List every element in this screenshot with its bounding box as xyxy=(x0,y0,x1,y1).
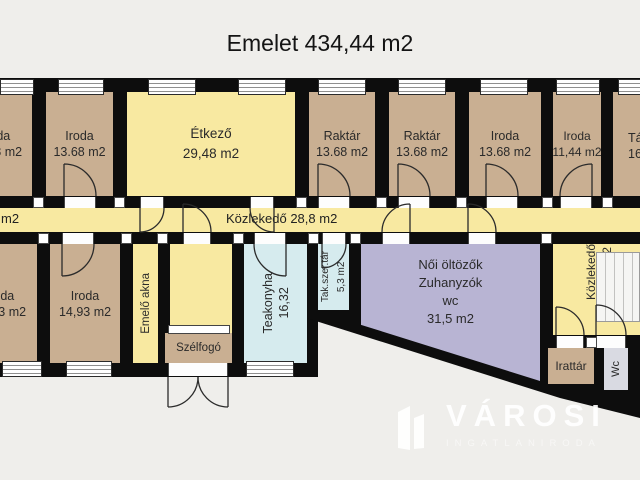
door-opening xyxy=(254,233,286,244)
window-icon xyxy=(318,79,366,95)
room-label: Tak.szer.tár5,3 m2 xyxy=(318,251,350,302)
room-iroda-5: Iroda14,93 m2 xyxy=(50,244,120,363)
wall-cap xyxy=(456,197,467,208)
door-opening xyxy=(250,197,274,208)
room-raktar-1: Raktár13.68 m2 xyxy=(309,92,375,196)
corridor-main: Közlekedő 28,8 m2 m2 xyxy=(0,208,640,232)
staircase xyxy=(596,252,640,322)
door-opening xyxy=(318,197,350,208)
room-label: Tá16 xyxy=(628,130,640,162)
room-iroda-cut-left-top: Iroda13.68 m2 xyxy=(0,92,32,196)
room-iroda-2: Iroda13.68 m2 xyxy=(46,92,113,196)
wall-cap xyxy=(308,233,319,244)
window-icon xyxy=(66,361,112,377)
sliding-door xyxy=(168,325,230,334)
room-noi-oltozok: Női öltözők Zuhanyzók wc 31,5 m2 xyxy=(361,244,540,381)
window-icon xyxy=(556,79,600,95)
window-icon xyxy=(148,79,196,95)
watermark-tagline: INGATLANIRODA xyxy=(446,438,607,449)
wall-cap xyxy=(121,233,132,244)
watermark-brand: VÁROSI xyxy=(446,398,607,434)
watermark-text: VÁROSI INGATLANIRODA xyxy=(446,398,607,449)
window-icon xyxy=(238,79,286,95)
wall-cap xyxy=(38,233,49,244)
window-icon xyxy=(0,79,34,95)
room-label: Emelő akna xyxy=(138,273,154,334)
floor-plan-page: Emelet 434,44 m2 Iroda13.68 m2 Iroda13.6… xyxy=(0,0,640,480)
door-opening xyxy=(556,336,584,348)
watermark-logo-icon xyxy=(388,398,434,456)
room-teakonyha: Teakonyha16,32 xyxy=(244,244,307,363)
room-tak-szertar: Tak.szer.tár5,3 m2 xyxy=(318,244,349,310)
room-szelfogo: Szélfogó xyxy=(165,333,232,363)
wall-cap xyxy=(296,197,307,208)
room-iroda-4: Iroda11,44 m2 xyxy=(553,92,601,196)
room-label: Iroda14,93 m2 xyxy=(0,288,42,320)
wall-cap xyxy=(376,197,387,208)
door-opening xyxy=(560,197,592,208)
door-opening xyxy=(596,336,626,348)
window-icon xyxy=(618,79,640,95)
room-label: Teakonyha16,32 xyxy=(260,273,292,333)
door-opening xyxy=(486,197,518,208)
room-label: Iroda13.68 m2 xyxy=(0,128,38,160)
corridor-label-fragment: m2 xyxy=(1,211,19,227)
door-opening xyxy=(468,233,496,244)
room-wc: Wc xyxy=(604,348,628,390)
room-iroda-cut-left-bottom: Iroda14,93 m2 xyxy=(0,244,37,363)
wall-cap xyxy=(586,337,597,348)
room-cut-right: Tá16 xyxy=(613,92,640,196)
watermark: VÁROSI INGATLANIRODA xyxy=(388,398,640,456)
corridor-label: Közlekedő 28,8 m2 xyxy=(226,211,337,227)
entrance-door-opening xyxy=(168,363,228,376)
window-icon xyxy=(398,79,446,95)
wall-cap xyxy=(541,233,552,244)
door-opening xyxy=(140,197,164,208)
window-icon xyxy=(2,361,42,377)
entry-hall xyxy=(170,244,232,333)
page-title: Emelet 434,44 m2 xyxy=(0,30,640,57)
door-opening xyxy=(322,233,346,244)
room-iroda-3: Iroda13.68 m2 xyxy=(469,92,541,196)
wall-cap xyxy=(350,233,361,244)
window-icon xyxy=(58,79,104,95)
wall-cap xyxy=(542,197,553,208)
room-irattar: Irattár xyxy=(548,348,594,384)
wall-cap xyxy=(233,233,244,244)
door-opening xyxy=(382,233,410,244)
room-raktar-2: Raktár13.68 m2 xyxy=(389,92,455,196)
wall-cap xyxy=(114,197,125,208)
room-etkezo: Étkező29,48 m2 xyxy=(127,92,295,196)
room-label: Wc xyxy=(608,361,624,377)
door-opening xyxy=(64,197,96,208)
window-icon xyxy=(246,361,294,377)
wall-cap xyxy=(33,197,44,208)
wall-cap xyxy=(157,233,168,244)
door-opening xyxy=(62,233,94,244)
room-emelo-akna: Emelő akna xyxy=(133,244,158,363)
wall-cap xyxy=(602,197,613,208)
door-opening xyxy=(183,233,211,244)
window-icon xyxy=(480,79,528,95)
door-opening xyxy=(398,197,430,208)
